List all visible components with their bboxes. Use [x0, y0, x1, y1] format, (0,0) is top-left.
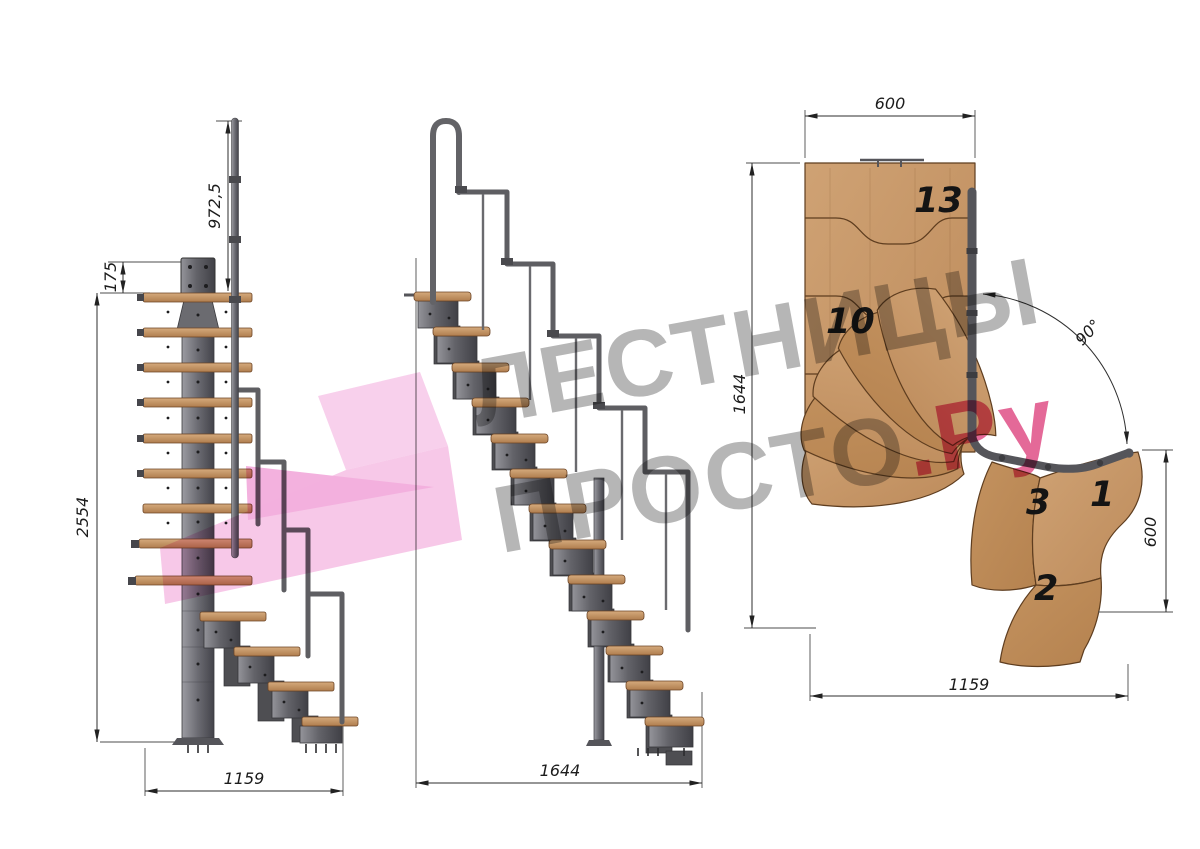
front-view-drawing: 1644 — [404, 121, 704, 788]
dim-side-rail-height: 972,5 — [205, 183, 224, 229]
plan-step-label-2: 2 — [1034, 569, 1058, 609]
side-view-drawing: 2554 175 972,5 1159 — [73, 118, 358, 796]
dim-plan-turn-angle: 90° — [1071, 315, 1104, 349]
dim-side-plate-offset: 175 — [101, 262, 120, 293]
plan-step-label-3: 3 — [1026, 483, 1050, 523]
plan-view-lower-steps — [971, 452, 1142, 667]
dim-side-base-run: 1159 — [224, 769, 265, 788]
staircase-drawing-page: 2554 175 972,5 1159 — [0, 0, 1200, 849]
plan-step-label-13: 13 — [914, 181, 963, 221]
side-view-rail-post — [232, 118, 239, 558]
plan-view-drawing: 90° 600 1644 600 — [730, 94, 1173, 701]
dim-front-total-run: 1644 — [540, 761, 581, 780]
dim-plan-top-width: 600 — [875, 94, 906, 113]
dim-plan-right-width: 600 — [1141, 517, 1160, 548]
plan-step-label-10: 10 — [826, 302, 875, 342]
dim-plan-left-depth: 1644 — [730, 374, 749, 415]
front-view-steps — [414, 292, 704, 765]
dim-side-total-height: 2554 — [73, 497, 92, 538]
plan-step-label-1: 1 — [1090, 475, 1114, 515]
technical-drawing-canvas: 2554 175 972,5 1159 — [0, 0, 1200, 849]
dim-plan-bottom-run: 1159 — [949, 675, 990, 694]
